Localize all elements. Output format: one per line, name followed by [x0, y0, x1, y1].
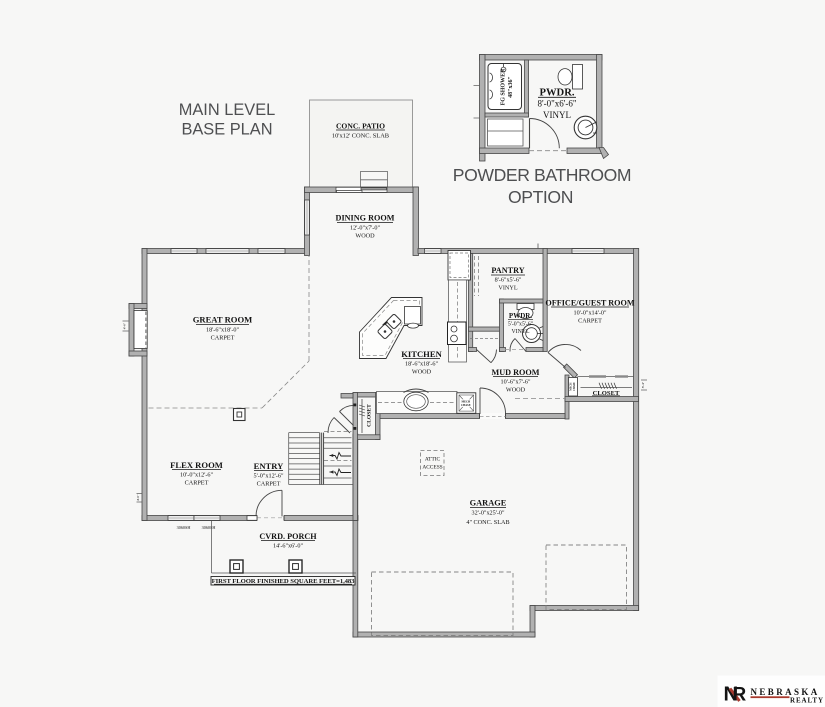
svg-text:3060SH: 3060SH	[202, 525, 216, 530]
svg-text:10'-0"x12'-6": 10'-0"x12'-6"	[180, 472, 214, 479]
svg-text:MUD ROOM: MUD ROOM	[492, 368, 540, 377]
svg-text:R: R	[733, 685, 747, 706]
svg-text:PWDR.: PWDR.	[509, 312, 532, 320]
svg-text:ENTRY: ENTRY	[254, 461, 285, 471]
svg-text:PANTRY: PANTRY	[491, 266, 524, 275]
svg-text:VINYL: VINYL	[498, 285, 517, 292]
svg-text:OFFICE/GUEST ROOM: OFFICE/GUEST ROOM	[545, 299, 635, 308]
svg-text:4'-6": 4'-6"	[123, 322, 127, 329]
svg-text:ATTIC: ATTIC	[425, 457, 441, 463]
svg-text:GARAGE: GARAGE	[470, 499, 507, 508]
svg-text:48"x36": 48"x36"	[508, 76, 514, 98]
svg-text:5'-0"x12'-6": 5'-0"x12'-6"	[254, 473, 284, 480]
svg-text:FG SHOWER: FG SHOWER	[501, 68, 507, 106]
svg-text:8'-6"x5'-6": 8'-6"x5'-6"	[495, 277, 522, 284]
svg-text:WOOD: WOOD	[355, 233, 375, 240]
svg-text:ACCESS: ACCESS	[422, 465, 442, 471]
svg-text:DINING ROOM: DINING ROOM	[336, 214, 395, 223]
svg-text:WOOD: WOOD	[506, 387, 526, 394]
svg-text:18'-6"x18'-0": 18'-6"x18'-0"	[206, 327, 240, 334]
svg-text:BASE PLAN: BASE PLAN	[181, 121, 272, 139]
svg-text:VINYL: VINYL	[511, 329, 529, 335]
svg-text:CLOSET: CLOSET	[367, 404, 373, 427]
svg-text:5'-0"x5'-6": 5'-0"x5'-6"	[508, 322, 533, 328]
svg-text:KITCHEN: KITCHEN	[401, 349, 442, 359]
svg-text:10'-6"x7'-6": 10'-6"x7'-6"	[501, 379, 531, 386]
svg-text:32'-0"x25'-0": 32'-0"x25'-0"	[471, 510, 505, 517]
svg-text:VINYL: VINYL	[543, 110, 571, 120]
svg-text:POWDER BATHROOM: POWDER BATHROOM	[453, 165, 631, 185]
svg-text:8'-0"x6'-6": 8'-0"x6'-6"	[537, 99, 576, 109]
svg-text:REALTY: REALTY	[790, 696, 824, 704]
svg-text:GREAT ROOM: GREAT ROOM	[193, 315, 253, 325]
svg-text:8'-4": 8'-4"	[641, 381, 645, 388]
svg-text:CARPET: CARPET	[211, 335, 235, 342]
svg-text:CARPET: CARPET	[578, 318, 602, 325]
svg-text:4'-6": 4'-6"	[136, 494, 140, 501]
svg-text:10'x12' CONC. SLAB: 10'x12' CONC. SLAB	[332, 133, 389, 140]
svg-text:MAIN LEVEL: MAIN LEVEL	[179, 101, 276, 119]
svg-text:4" CONC. SLAB: 4" CONC. SLAB	[466, 519, 509, 526]
svg-text:CHASE: CHASE	[461, 404, 471, 407]
svg-text:18'-6"x18'-6": 18'-6"x18'-6"	[405, 361, 439, 368]
svg-text:CHASE: CHASE	[573, 382, 576, 391]
svg-text:CARPET: CARPET	[185, 480, 209, 487]
svg-text:OPTION: OPTION	[508, 187, 573, 207]
svg-text:3060SH: 3060SH	[177, 525, 191, 530]
svg-text:CARPET: CARPET	[257, 481, 281, 488]
svg-text:12'-0"x7'-0": 12'-0"x7'-0"	[350, 225, 380, 232]
svg-text:10'-0"x14'-0": 10'-0"x14'-0"	[573, 310, 607, 317]
svg-text:NEBRASKA: NEBRASKA	[751, 687, 820, 697]
svg-text:PWDR.: PWDR.	[539, 88, 574, 99]
svg-text:CVRD. PORCH: CVRD. PORCH	[259, 532, 317, 541]
svg-text:WOOD: WOOD	[412, 369, 432, 376]
svg-text:CONC. PATIO: CONC. PATIO	[336, 122, 385, 131]
svg-text:14'-6"x6'-0": 14'-6"x6'-0"	[273, 543, 303, 550]
svg-text:FLEX ROOM: FLEX ROOM	[170, 460, 223, 470]
svg-text:MECH: MECH	[461, 401, 471, 404]
